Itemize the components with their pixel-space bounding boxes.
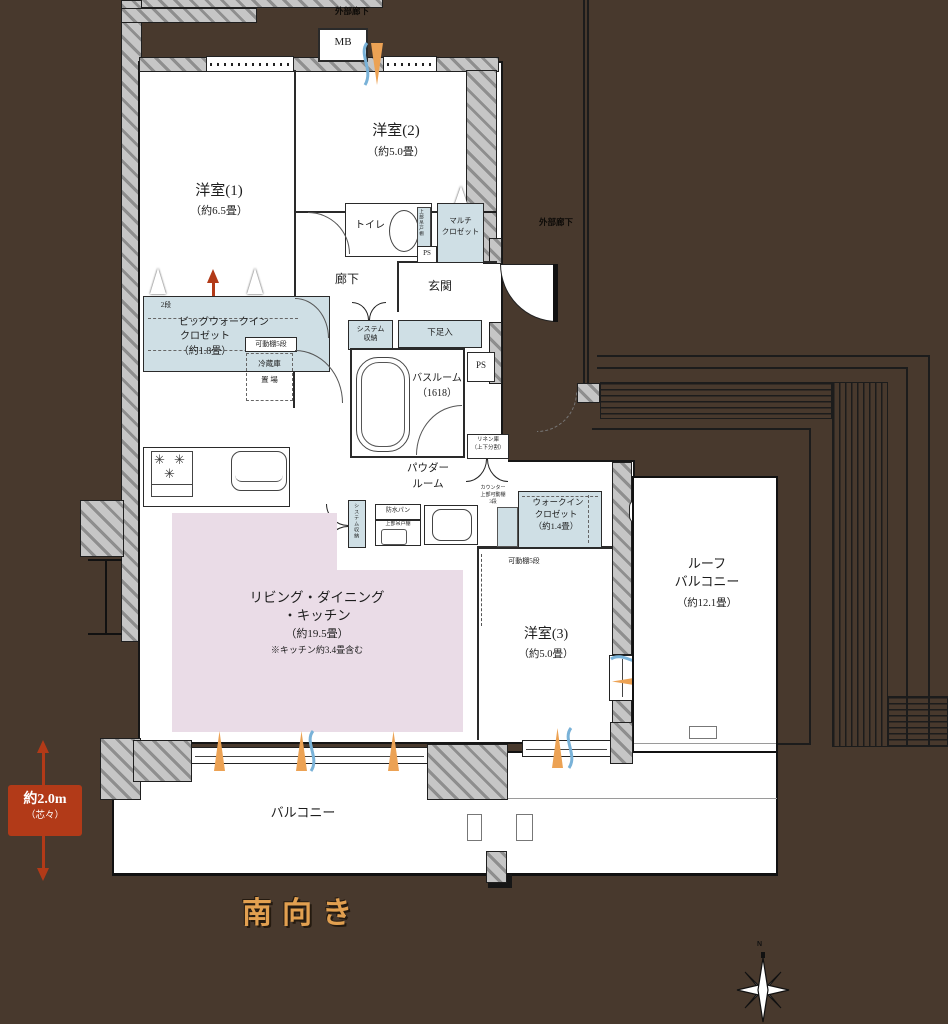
room3-sliding-door-dash: [481, 554, 482, 626]
entrance-door-leaf: [553, 264, 558, 322]
partition-room3-left: [477, 548, 479, 740]
ldk-note: ※キッチン約3.4畳含む: [271, 645, 363, 656]
system-storage-label-1: システム: [348, 325, 393, 334]
entrance-door-swing: [500, 264, 557, 322]
ldk-label-2: ・キッチン: [283, 608, 351, 624]
counter-blue-strip: [497, 507, 518, 547]
bathroom-size: （1618）: [417, 388, 457, 400]
depth-arrow-down-shaft: [42, 836, 45, 870]
big-wic-label-2: クロゼット: [180, 331, 230, 343]
breeze-icon: [360, 42, 372, 86]
door-arc-exterior-dashed: [537, 392, 577, 432]
linen-label-1: リネン庫: [467, 437, 509, 444]
stove-burner-icon: ✳: [164, 467, 175, 480]
balcony-vent: [516, 814, 533, 841]
window-room2-top: [383, 56, 437, 72]
ps-mid-label: PS: [467, 360, 495, 371]
system-storage-vertical-label: システム収納: [352, 503, 358, 539]
stove-burner-icon: ✳: [174, 453, 185, 466]
wall-bottom-right: [610, 722, 633, 764]
kitchen-sink-inner: [235, 455, 283, 482]
compass-icon: [735, 952, 791, 1024]
powder-room-label-2: ルーム: [412, 479, 443, 492]
depth-label-2: （芯々）: [8, 811, 82, 823]
toilet-bowl: [389, 210, 419, 252]
washer-square: [381, 529, 407, 545]
room2-name: 洋室(2): [372, 122, 420, 140]
partition-entry-step: [397, 261, 399, 312]
stove-grill: [152, 484, 192, 496]
room3-size: （約5.0畳）: [518, 649, 573, 662]
roof-balcony-label-2: バルコニー: [675, 574, 740, 590]
upper-cabinet-label: 上部吊戸棚: [375, 522, 421, 528]
counter-shelf-label-2: 上部可動棚: [470, 493, 516, 499]
ldk-size: （約19.5畳）: [285, 628, 348, 641]
entrance-label: 玄関: [428, 279, 452, 294]
window-louver-dots: [210, 63, 290, 66]
depth-arrow-up-shaft: [42, 751, 45, 785]
window-room1-top: [206, 56, 294, 72]
kitchen-sink: [231, 451, 287, 491]
ldk-label-1: リビング・ダイニング: [250, 590, 385, 606]
fridge-label-2: 置 場: [246, 375, 293, 384]
wall-corner-block: [577, 383, 600, 403]
movable-shelf-label-2: 可動棚5段: [508, 557, 540, 566]
south-facing-label: 南向き: [242, 896, 362, 933]
wic-label-2: クロゼット: [535, 509, 578, 519]
roof-balcony-size: （約12.1畳）: [677, 598, 737, 611]
bathtub: [356, 357, 410, 452]
roof-balcony-drain: [689, 726, 717, 739]
roof-balcony-label-1: ルーフ: [688, 556, 726, 572]
big-wic-label-1: ビッグウォークイン: [179, 317, 269, 329]
multi-closet-label-2: クロゼット: [437, 227, 484, 236]
wall-right-upper: [466, 70, 497, 212]
counter-shelf-label-1: カウンター: [470, 486, 516, 492]
roof-balcony-step-line: [634, 743, 776, 744]
folding-door-mark: [150, 268, 166, 294]
wic-label-1: ウォークイン: [532, 497, 583, 507]
balcony-vent: [467, 814, 482, 841]
bathtub-inner: [361, 362, 405, 447]
powder-room-label-1: パウダー: [407, 463, 449, 476]
breeze-icon: [564, 727, 576, 769]
movable-shelf-label-1: 可動棚5段: [245, 340, 297, 349]
wall-bottom-left: [133, 740, 192, 782]
room1-name: 洋室(1): [195, 182, 243, 200]
hallway-label: 廊下: [335, 272, 359, 287]
linen-label-2: （上下分割）: [467, 445, 509, 452]
wall-corridor-top: [121, 8, 257, 23]
fridge-label-1: 冷蔵庫: [246, 359, 293, 368]
wall-left-pilaster: [80, 500, 124, 557]
stove: ✳ ✳ ✳: [151, 451, 193, 497]
system-storage-label-2: 収納: [348, 334, 393, 343]
stair-treads-bottom: [888, 696, 948, 747]
ps-top-label: PS: [417, 249, 437, 258]
wic-shelf-dash: [588, 495, 589, 543]
stove-burner-icon: ✳: [154, 453, 165, 466]
washbasin-bowl: [432, 509, 472, 541]
exterior-corridor-top-label: 外部廊下: [320, 6, 384, 16]
structure-line: [88, 633, 122, 635]
roof-balcony: [632, 476, 778, 798]
bathroom-label: バスルーム: [412, 373, 462, 385]
balcony-label: バルコニー: [271, 805, 336, 821]
stair-treads-right: [832, 382, 888, 747]
big-wic-tier-label: 2段: [152, 301, 180, 310]
structure-line: [105, 559, 107, 635]
depth-arrow-down-head: [37, 868, 49, 881]
window-louver-dots: [387, 63, 433, 66]
exterior-corridor-right-label: 外部廊下: [524, 217, 588, 227]
shoe-box-label: 下足入: [398, 327, 482, 337]
multi-closet-label-1: マルチ: [437, 216, 484, 225]
toilet-upper-shelf-label: 上部吊戸棚: [419, 209, 424, 237]
room2-size: （約5.0畳）: [367, 146, 425, 159]
compass-n-label: N: [757, 941, 762, 950]
room3-name: 洋室(3): [524, 626, 568, 643]
floor-plan: MB 外部廊下 外部廊下 洋室(1) （約6.5畳） 洋室(2) （約5.0畳）…: [0, 0, 948, 1024]
stair-boundary-line: [583, 0, 589, 384]
stair-treads-top: [600, 382, 832, 419]
folding-door-mark: [247, 268, 263, 294]
partition-room1-room2: [294, 70, 296, 298]
red-arrow-up-head: [207, 269, 219, 283]
breeze-icon: [306, 730, 318, 772]
wall-east-upper: [612, 462, 632, 655]
wall-balcony-pilaster: [486, 851, 507, 883]
waterproof-pan-label: 防水パン: [375, 508, 421, 515]
depth-label-1: 約2.0m: [8, 791, 82, 808]
room1-size: （約6.5畳）: [190, 205, 248, 218]
toilet-label: トイレ: [348, 220, 392, 232]
wall-bottom-mid: [427, 744, 508, 800]
wic-size: （約1.4畳）: [534, 521, 579, 531]
big-wic-size: （約1.8畳）: [179, 346, 232, 358]
